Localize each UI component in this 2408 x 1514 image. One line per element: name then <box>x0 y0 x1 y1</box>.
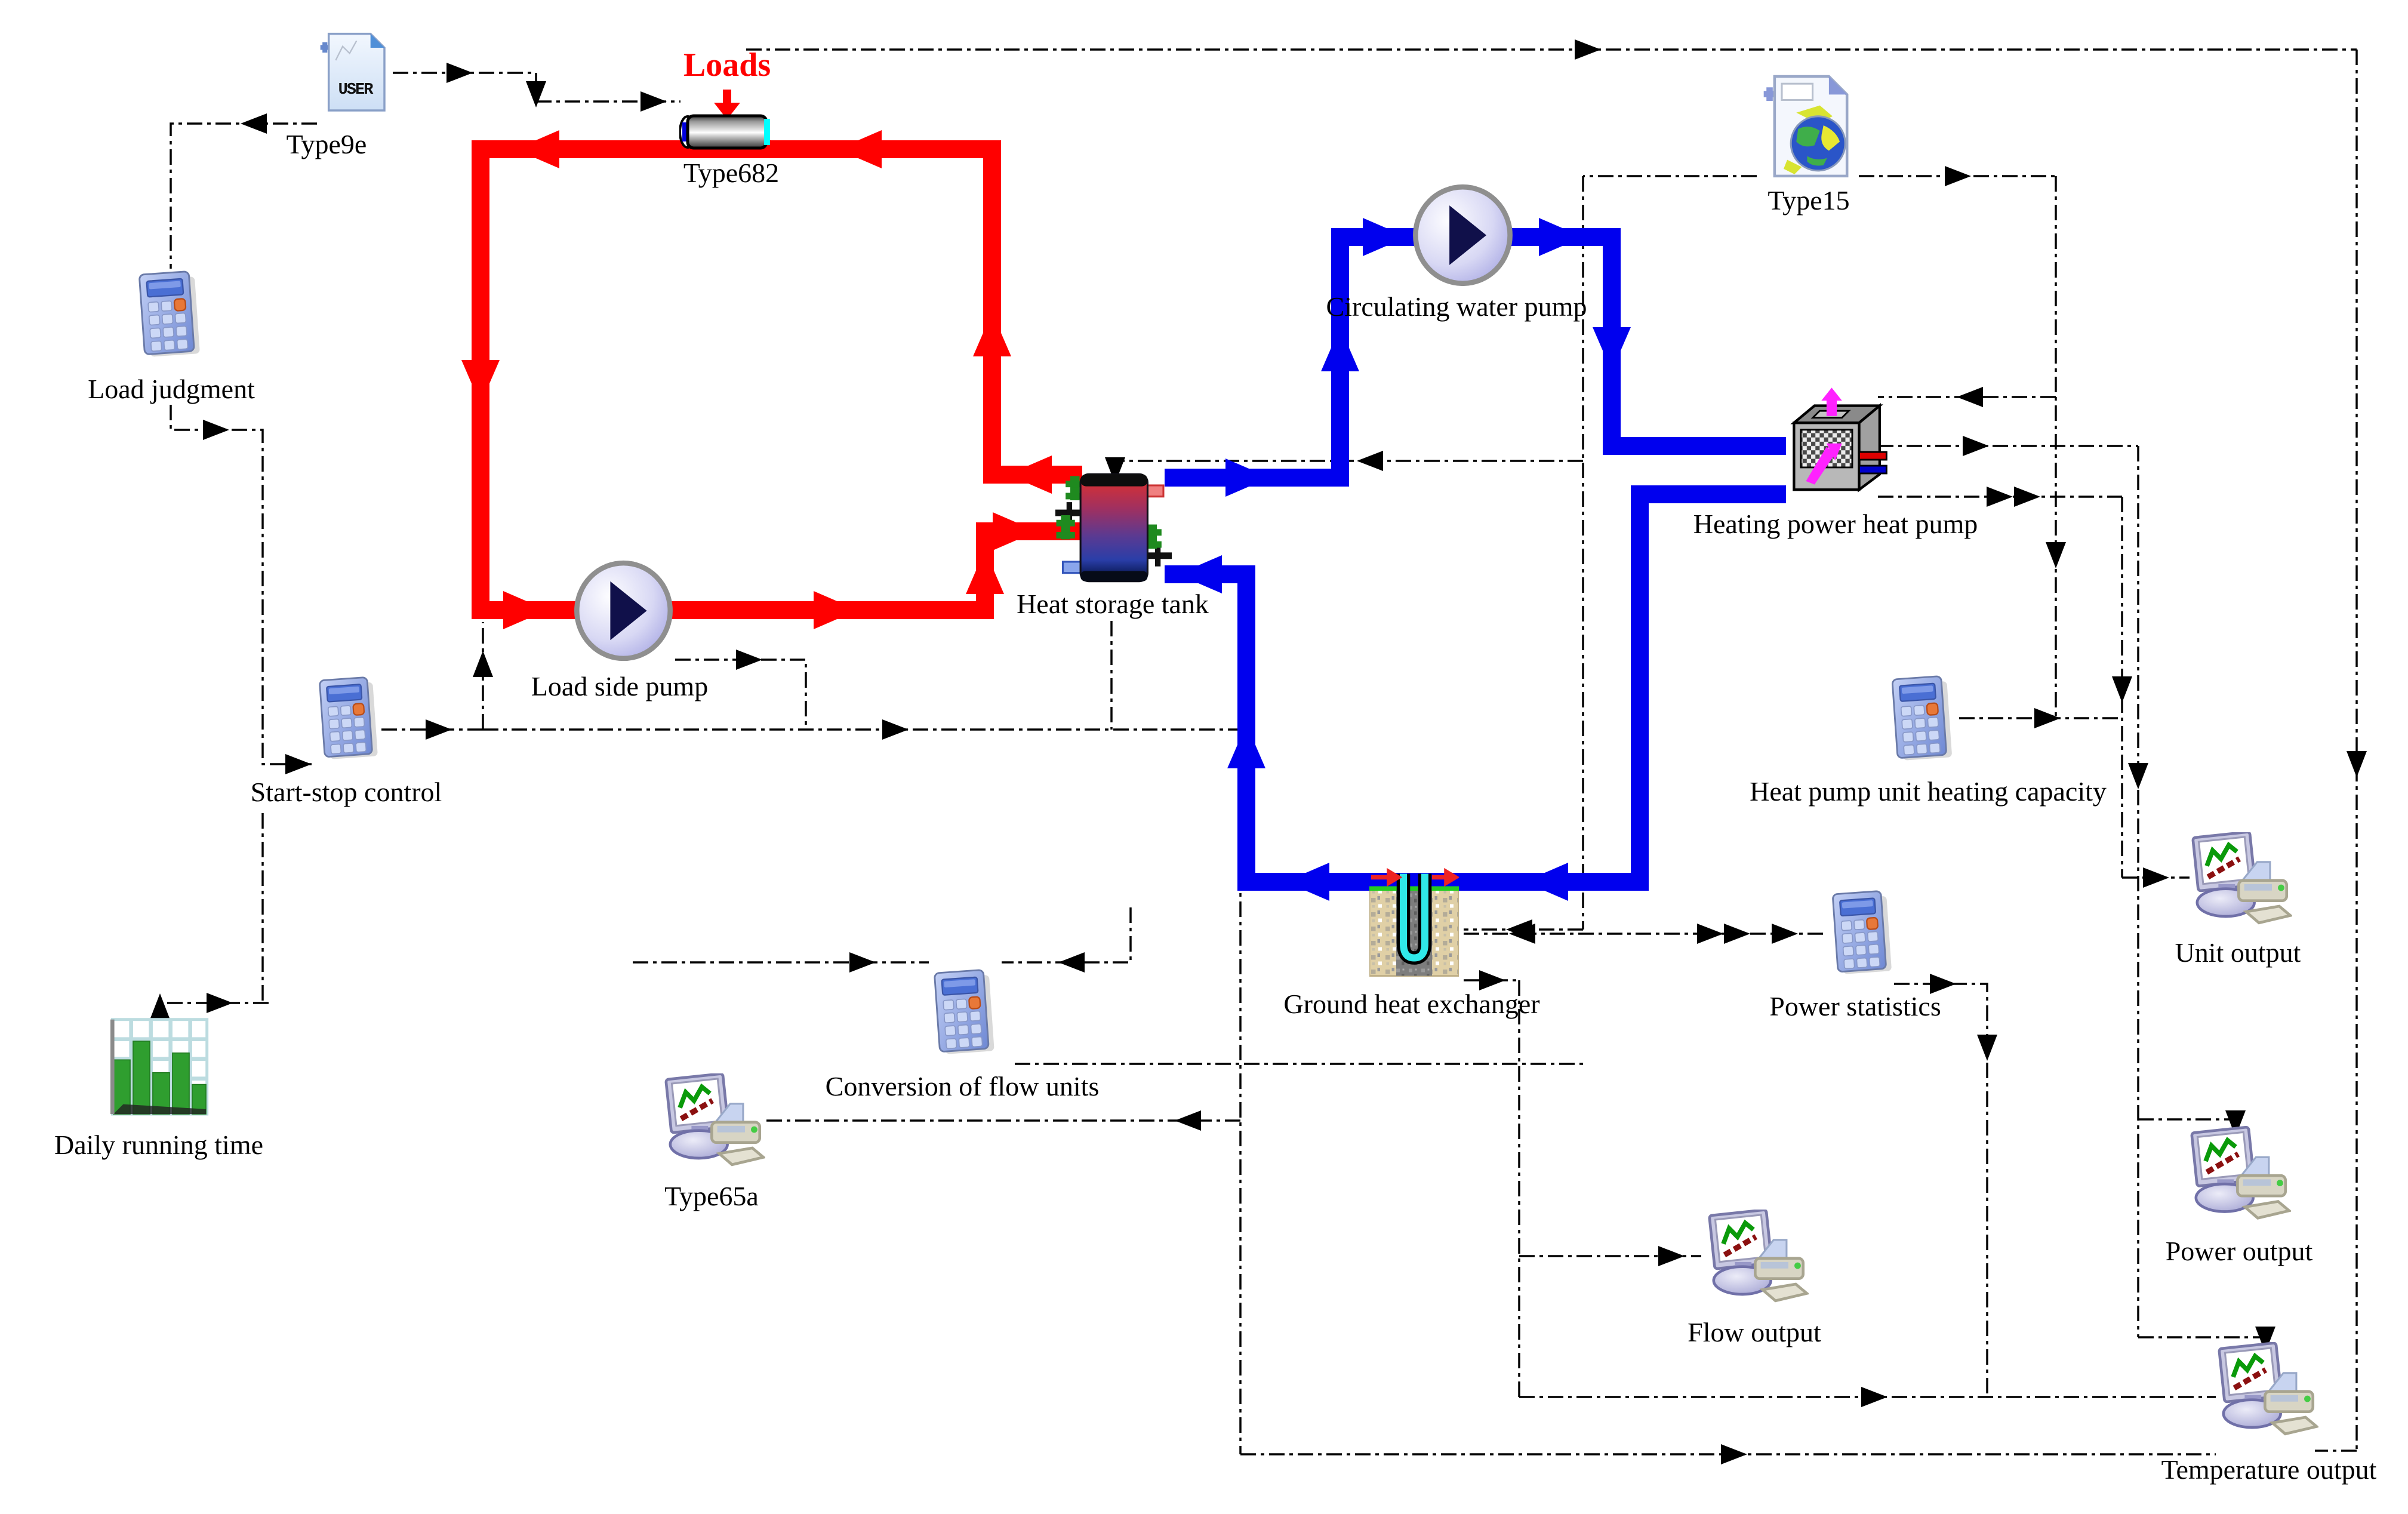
daily-running-time-label: Daily running time <box>54 1131 263 1159</box>
pump-icon[interactable] <box>1411 184 1514 287</box>
weather-data-file-icon[interactable] <box>1757 73 1861 181</box>
power-statistics-label: Power statistics <box>1769 992 1941 1021</box>
heat-pump-unit-heating-capacity-label: Heat pump unit heating capacity <box>1750 777 2107 806</box>
link-line[interactable] <box>536 73 680 101</box>
type15-label: Type15 <box>1767 186 1849 215</box>
component-type15[interactable] <box>1757 73 1861 181</box>
flow-arrow <box>1697 924 1723 944</box>
flow-arrow <box>1957 387 1983 407</box>
flow-arrow <box>882 719 909 740</box>
storage-tank-icon[interactable] <box>1055 470 1172 585</box>
flow-arrow <box>526 81 546 107</box>
flow-arrow <box>285 754 312 774</box>
flow-arrow <box>1175 1110 1201 1131</box>
flow-arrow <box>1593 327 1631 371</box>
flow-arrow <box>461 360 500 404</box>
calculator-icon[interactable] <box>1828 888 1896 976</box>
component-power-statistics[interactable] <box>1828 888 1896 976</box>
flow-arrow <box>1861 1387 1887 1407</box>
cold-water-pipe-return[interactable] <box>1165 494 1786 882</box>
flow-arrow <box>1178 555 1222 593</box>
flow-arrow <box>966 550 1004 594</box>
flow-arrow <box>1724 924 1750 944</box>
power-output-label: Power output <box>2166 1237 2313 1266</box>
diagram-canvas: USER Type9e Loads Type682 Load judgment … <box>0 0 2408 1514</box>
heat-pump-icon[interactable] <box>1782 387 1895 493</box>
flow-arrow <box>503 591 547 629</box>
flow-output-label: Flow output <box>1688 1318 1821 1347</box>
load-side-pump-label: Load side pump <box>531 672 708 701</box>
link-line[interactable] <box>1894 984 1987 1397</box>
component-start-stop-control[interactable] <box>313 675 384 761</box>
type9e-label: Type9e <box>287 130 367 159</box>
flow-arrow <box>1575 39 1601 60</box>
flow-arrow <box>1721 1444 1747 1464</box>
flow-arrow <box>1772 924 1798 944</box>
flow-arrow <box>1524 863 1568 901</box>
flow-arrow <box>515 130 559 168</box>
flow-arrow <box>2347 751 2367 777</box>
flow-arrow <box>1008 456 1052 494</box>
online-plotter-icon[interactable] <box>664 1073 765 1172</box>
flow-arrow <box>447 63 473 83</box>
flow-arrow <box>1227 724 1265 768</box>
ground-heat-exchanger-label: Ground heat exchanger <box>1283 990 1539 1018</box>
component-load-judgment[interactable] <box>134 269 205 358</box>
flow-arrow <box>1987 487 2013 507</box>
component-flow-output[interactable] <box>1707 1210 1809 1308</box>
component-ground-heat-exchanger[interactable] <box>1369 864 1459 978</box>
component-type682[interactable] <box>679 114 772 150</box>
flow-arrow <box>641 91 667 112</box>
flow-arrow <box>1285 863 1329 901</box>
flow-arrow <box>473 651 493 677</box>
load-judgment-label: Load judgment <box>88 375 255 404</box>
component-type65a[interactable] <box>664 1073 765 1172</box>
flow-arrow <box>1539 218 1583 256</box>
user-file-text: USER <box>317 81 393 99</box>
component-type9e[interactable]: USER <box>317 31 393 115</box>
flow-arrow <box>241 113 267 134</box>
pipe-duct-icon[interactable] <box>679 114 772 150</box>
calculator-icon[interactable] <box>134 269 205 358</box>
component-temperature-output[interactable] <box>2217 1342 2318 1442</box>
flow-arrow <box>2143 867 2169 888</box>
user-data-file-icon[interactable]: USER <box>317 31 393 115</box>
online-plotter-icon[interactable] <box>2217 1342 2318 1442</box>
component-power-output[interactable] <box>2190 1126 2291 1226</box>
hot-water-pipe[interactable] <box>481 149 1082 610</box>
flow-arrow <box>1658 1246 1685 1266</box>
flow-arrow <box>1058 952 1085 973</box>
flow-arrow <box>1321 327 1359 371</box>
flow-arrow <box>2034 708 2061 728</box>
flow-arrow <box>1977 1035 1997 1061</box>
flow-arrow <box>203 420 229 440</box>
online-plotter-icon[interactable] <box>2190 1126 2291 1226</box>
component-heat-pump-unit-heating-capacity[interactable] <box>1886 673 1958 762</box>
link-line[interactable] <box>171 405 312 764</box>
component-unit-output[interactable] <box>2191 832 2292 930</box>
unit-output-label: Unit output <box>2175 938 2301 967</box>
flow-arrow <box>426 719 452 740</box>
flow-arrow <box>1945 166 1971 186</box>
calculator-icon[interactable] <box>1886 673 1958 762</box>
flow-arrow <box>2128 763 2148 789</box>
flow-arrow <box>1479 970 1505 990</box>
type65a-label: Type65a <box>664 1182 759 1211</box>
flow-arrow <box>2014 487 2040 507</box>
flow-arrow <box>1963 436 1989 456</box>
link-line[interactable] <box>1002 907 1131 962</box>
online-plotter-icon[interactable] <box>1707 1210 1809 1308</box>
bar-chart-icon[interactable] <box>110 1016 209 1122</box>
heat-storage-tank-label: Heat storage tank <box>1017 590 1209 618</box>
circulating-water-pump-label: Circulating water pump <box>1326 293 1587 321</box>
borehole-heat-exchanger-icon[interactable] <box>1369 864 1459 978</box>
start-stop-control-label: Start-stop control <box>251 778 442 807</box>
flow-arrow <box>736 650 762 670</box>
flow-arrow <box>1357 451 1383 471</box>
component-daily-running-time[interactable] <box>110 1016 209 1122</box>
online-plotter-icon[interactable] <box>2191 832 2292 930</box>
loads-annotation: Loads <box>683 48 771 83</box>
component-load-side-pump[interactable] <box>572 560 675 661</box>
pump-icon[interactable] <box>572 560 675 661</box>
calculator-icon[interactable] <box>313 675 384 761</box>
flow-arrow <box>2112 676 2132 703</box>
flow-arrow <box>973 312 1011 356</box>
heating-power-heat-pump-label: Heating power heat pump <box>1693 510 1978 538</box>
flow-arrow <box>849 952 876 973</box>
calculator-icon[interactable] <box>930 967 999 1056</box>
flow-arrow <box>1363 218 1407 256</box>
flow-arrow <box>2046 542 2066 568</box>
component-heating-power-heat-pump[interactable] <box>1782 387 1895 493</box>
temperature-output-label: Temperature output <box>2161 1455 2377 1484</box>
conversion-of-flow-units-label: Conversion of flow units <box>826 1072 1100 1101</box>
component-heat-storage-tank[interactable] <box>1055 470 1172 585</box>
type682-label: Type682 <box>683 159 779 187</box>
flow-arrow <box>1225 458 1270 497</box>
flow-arrow <box>814 591 858 629</box>
flow-arrow <box>207 993 233 1013</box>
flow-arrow <box>837 130 882 168</box>
flow-arrow <box>993 512 1037 550</box>
component-circulating-water-pump[interactable] <box>1411 184 1514 287</box>
component-conversion-of-flow-units[interactable] <box>930 967 999 1056</box>
